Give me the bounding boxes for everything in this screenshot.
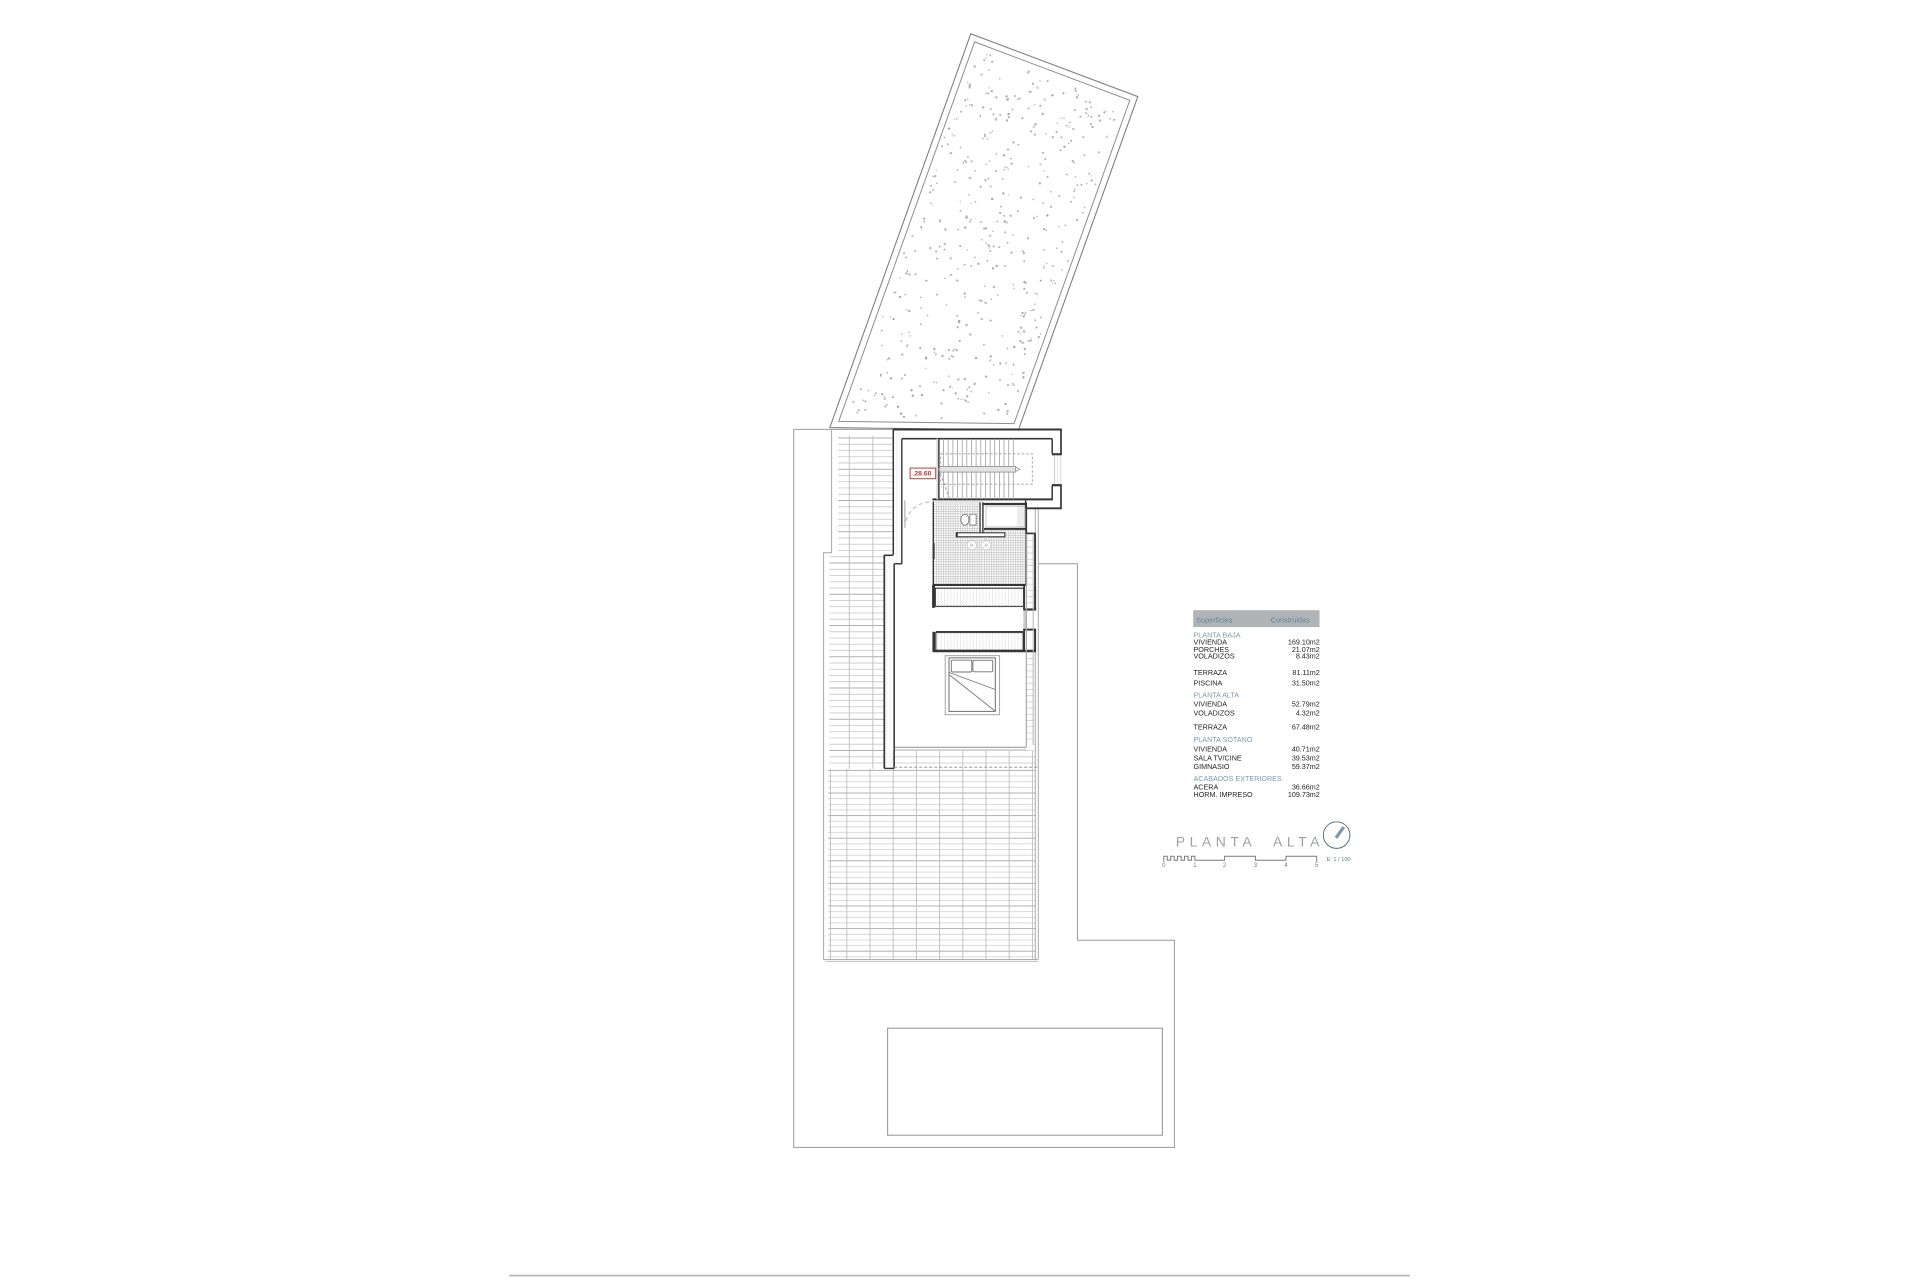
svg-text:8.43m2: 8.43m2 xyxy=(1296,652,1320,661)
svg-text:VOLADIZOS: VOLADIZOS xyxy=(1194,652,1235,661)
svg-text:40.71m2: 40.71m2 xyxy=(1292,744,1320,753)
svg-text:VOLADIZOS: VOLADIZOS xyxy=(1194,708,1235,717)
svg-text:67.48m2: 67.48m2 xyxy=(1292,723,1320,732)
svg-text:81.11m2: 81.11m2 xyxy=(1292,668,1319,677)
svg-text:59.37m2: 59.37m2 xyxy=(1292,762,1320,771)
svg-text:PLANTA ALTA: PLANTA ALTA xyxy=(1176,834,1324,850)
svg-text:VIVIENDA: VIVIENDA xyxy=(1194,744,1228,753)
svg-text:28.60: 28.60 xyxy=(914,471,931,478)
svg-text:TERRAZA: TERRAZA xyxy=(1194,723,1228,732)
svg-text:52.79m2: 52.79m2 xyxy=(1292,699,1320,708)
svg-text:PISCINA: PISCINA xyxy=(1194,679,1223,688)
svg-text:Construidas: Construidas xyxy=(1271,616,1310,625)
svg-text:Superficies: Superficies xyxy=(1196,616,1232,625)
svg-text:GIMNASIO: GIMNASIO xyxy=(1194,762,1230,771)
svg-text:VIVIENDA: VIVIENDA xyxy=(1194,699,1228,708)
svg-text:TERRAZA: TERRAZA xyxy=(1194,668,1228,677)
svg-text:PLANTA SOTANO: PLANTA SOTANO xyxy=(1194,735,1253,744)
svg-text:31.50m2: 31.50m2 xyxy=(1292,679,1320,688)
svg-text:PLANTA ALTA: PLANTA ALTA xyxy=(1194,690,1240,699)
svg-text:HORM. IMPRESO: HORM. IMPRESO xyxy=(1194,790,1254,799)
svg-text:109.73m2: 109.73m2 xyxy=(1288,790,1320,799)
svg-text:E: 1 / 100: E: 1 / 100 xyxy=(1327,857,1351,863)
svg-text:4.32m2: 4.32m2 xyxy=(1296,708,1320,717)
